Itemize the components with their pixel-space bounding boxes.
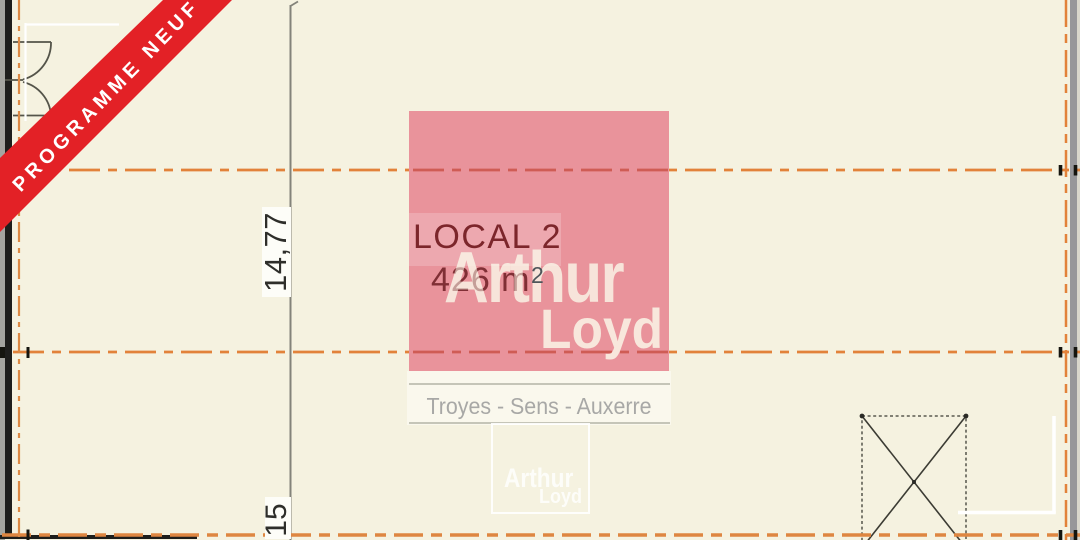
svg-text:PROGRAMME NEUF: PROGRAMME NEUF bbox=[9, 0, 205, 196]
